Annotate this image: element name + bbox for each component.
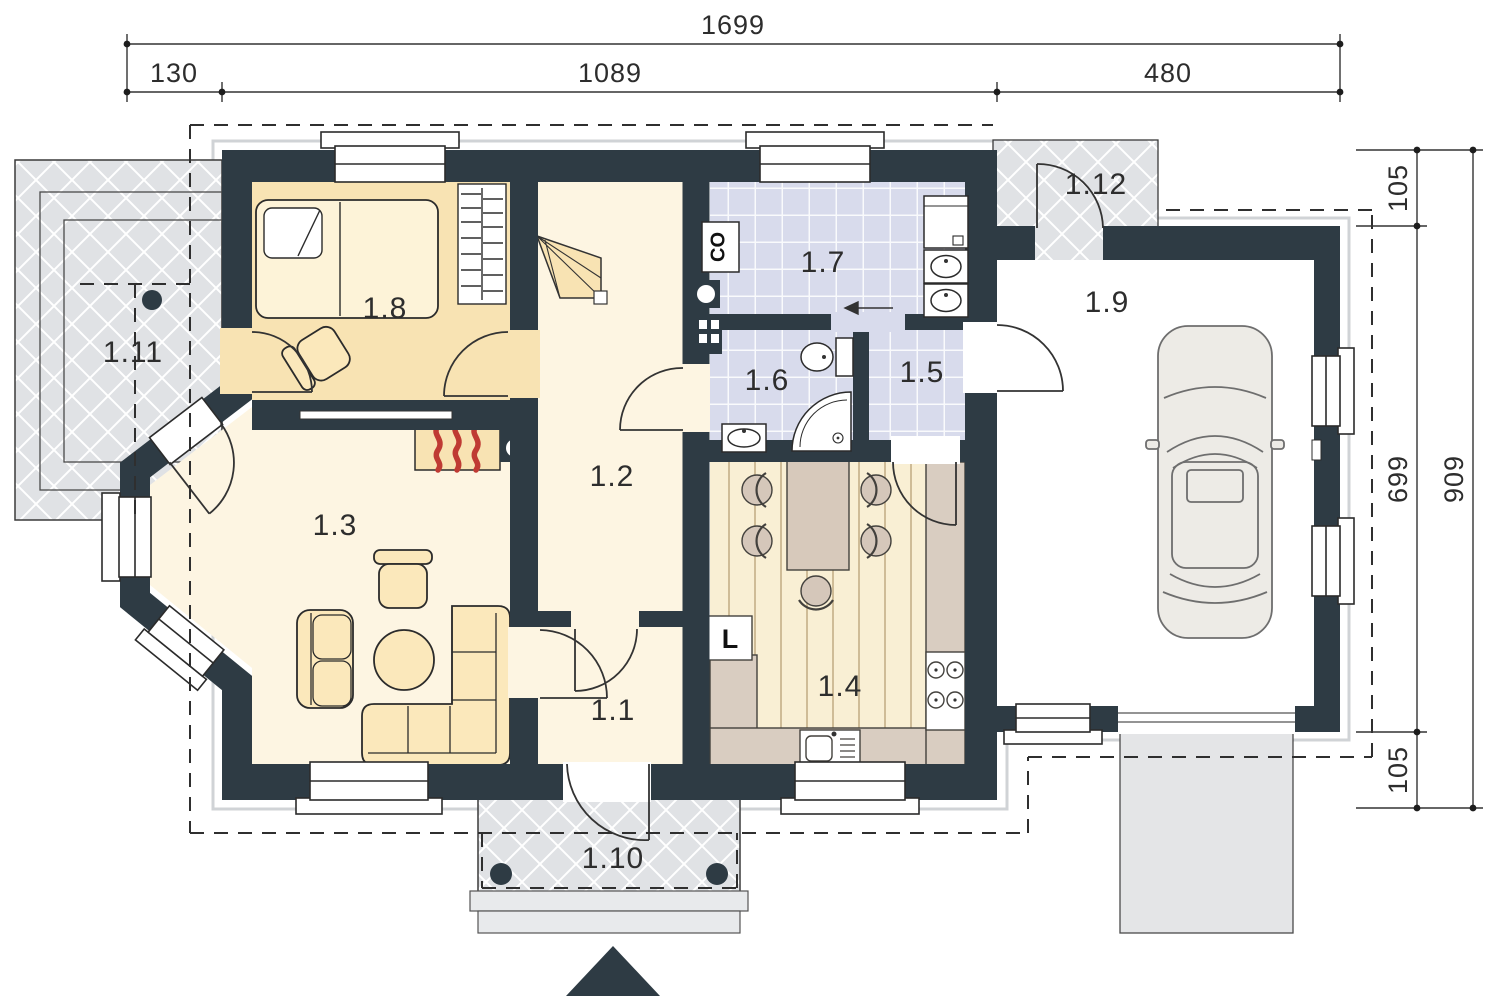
- dim-top-seg-1089: 1089: [578, 58, 642, 88]
- utility-basin-2: [924, 284, 968, 317]
- coffee-table: [374, 630, 434, 690]
- loveseat: [297, 610, 353, 708]
- floor-plan-page: CO: [0, 0, 1495, 1000]
- room-label-1-4: 1.4: [818, 670, 863, 703]
- window-garage-east-1: [1312, 348, 1354, 434]
- bath-sink: [722, 424, 766, 452]
- room-label-1-10: 1.10: [582, 842, 644, 875]
- dim-right-seg-105b: 105: [1383, 746, 1413, 794]
- window-bedroom-north: [321, 132, 459, 182]
- car: [1146, 326, 1284, 638]
- entrance-arrow-icon: [566, 946, 660, 996]
- window-utility-north: [746, 132, 884, 182]
- porch-column-right: [706, 863, 728, 885]
- dim-top-total: 1699: [701, 10, 765, 40]
- dim-right-seg-699: 699: [1383, 455, 1413, 503]
- porch-step-1: [470, 891, 748, 911]
- dim-top-seg-130: 130: [150, 58, 198, 88]
- heater-unit: [692, 280, 720, 308]
- window-bay-west: [102, 493, 151, 581]
- floor-plan-drawing: CO: [0, 0, 1495, 1000]
- room-label-1-11: 1.11: [103, 336, 163, 369]
- opening-garage-door: [1118, 704, 1295, 734]
- terrace-column: [142, 290, 162, 310]
- window-living-south: [296, 762, 442, 814]
- garage-vent: [1312, 440, 1321, 460]
- room-label-1-1: 1.1: [591, 694, 636, 727]
- opening-entrance: [1035, 226, 1103, 260]
- opening-bedroom-hall: [508, 330, 540, 398]
- driveway: [1120, 733, 1293, 933]
- stair-newel: [594, 291, 607, 304]
- car-mirror-left: [1146, 440, 1159, 449]
- opening-hall-vestibule: [571, 609, 639, 629]
- opening-bath-hall: [681, 364, 710, 432]
- wardrobe: [458, 184, 506, 304]
- washing-machine: [924, 196, 968, 248]
- dim-top-seg-480: 480: [1144, 58, 1192, 88]
- switchboard: [694, 314, 722, 354]
- opening-garage-house: [963, 322, 999, 393]
- dim-right-seg-105a: 105: [1383, 164, 1413, 212]
- opening-bedroom-terrace: [220, 328, 254, 394]
- window-garage-east-2: [1312, 518, 1354, 604]
- room-label-1-7: 1.7: [801, 246, 846, 279]
- bed: [256, 200, 438, 318]
- room-label-1-6: 1.6: [745, 364, 790, 397]
- room-label-1-2: 1.2: [590, 460, 635, 493]
- opening-utility: [831, 312, 905, 332]
- stove: [926, 652, 965, 730]
- car-mirror-right: [1271, 440, 1284, 449]
- opening-front-door: [563, 762, 651, 802]
- room-label-1-9: 1.9: [1085, 286, 1130, 319]
- boiler: CO: [702, 222, 739, 272]
- boiler-label: CO: [707, 232, 729, 262]
- fridge-label: L: [722, 624, 739, 654]
- window-garage-south: [1004, 704, 1102, 744]
- dim-right-total: 909: [1439, 455, 1469, 503]
- room-label-1-5: 1.5: [900, 356, 945, 389]
- room-label-1-3: 1.3: [313, 509, 358, 542]
- porch-column-left: [490, 863, 512, 885]
- utility-basin-1: [924, 250, 968, 283]
- wall-niche: [300, 411, 452, 419]
- window-kitchen-south: [781, 762, 919, 814]
- porch-step-2: [478, 911, 740, 933]
- room-label-1-8: 1.8: [363, 292, 408, 325]
- opening-living-vestibule: [508, 627, 540, 698]
- opening-kitchen: [891, 436, 960, 464]
- living-armchair: [374, 550, 432, 608]
- room-label-1-12: 1.12: [1065, 168, 1127, 201]
